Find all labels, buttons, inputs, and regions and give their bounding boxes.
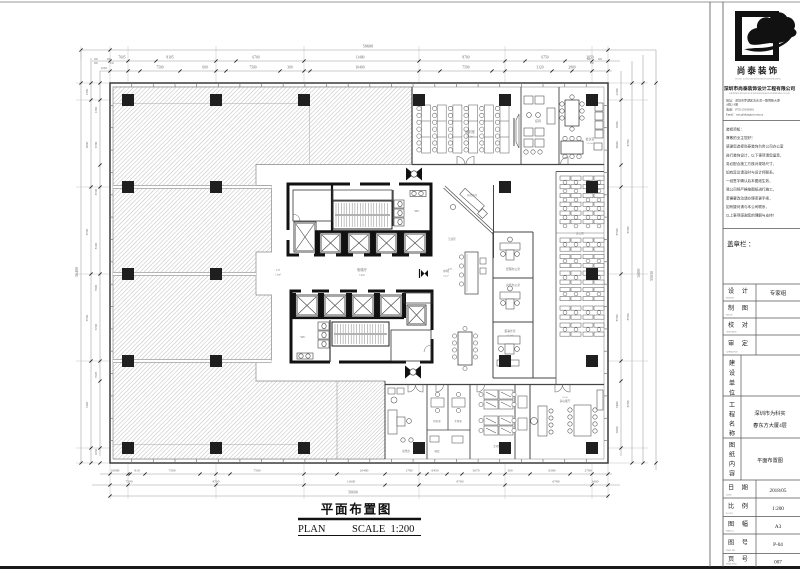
svg-text:5670: 5670 <box>473 469 480 473</box>
svg-text:深圳市尚泰装饰设计工程有限公司: 深圳市尚泰装饰设计工程有限公司 <box>724 85 796 92</box>
svg-text:8700: 8700 <box>626 139 630 146</box>
svg-text:8700: 8700 <box>85 228 89 235</box>
svg-text:春东方大厦4层: 春东方大厦4层 <box>753 421 787 429</box>
svg-text:SHEET.NO.: SHEET.NO. <box>726 564 737 566</box>
svg-text:前台接待: 前台接待 <box>467 193 478 197</box>
svg-text:电梯厅: 电梯厅 <box>357 267 368 272</box>
svg-text:10080: 10080 <box>111 469 120 473</box>
svg-text:DATE: DATE <box>726 494 732 497</box>
svg-text:洽谈区: 洽谈区 <box>448 237 456 241</box>
svg-text:办公区: 办公区 <box>576 232 584 236</box>
svg-text:装修须知：: 装修须知： <box>726 127 744 132</box>
svg-text:图 号: 图 号 <box>728 539 751 546</box>
svg-text:WC: WC <box>300 335 305 339</box>
svg-text:如有疑问请与本公司联系，: 如有疑问请与本公司联系， <box>726 204 769 209</box>
svg-text:55030: 55030 <box>650 271 654 281</box>
svg-text:PLAN: PLAN <box>298 524 326 535</box>
svg-text:平面布置图: 平面布置图 <box>757 456 783 464</box>
svg-text:6000: 6000 <box>615 141 619 148</box>
svg-text:8700: 8700 <box>457 480 464 484</box>
svg-text:位: 位 <box>729 389 735 397</box>
svg-text:7605: 7605 <box>94 371 98 378</box>
svg-text:会议室: 会议室 <box>585 136 594 141</box>
svg-text:2018/05: 2018/05 <box>769 488 786 494</box>
svg-text:工: 工 <box>729 402 735 409</box>
svg-text:C/E: C/E <box>276 269 281 272</box>
svg-text:财务室: 财务室 <box>433 419 441 423</box>
svg-text:8700: 8700 <box>462 56 469 60</box>
svg-text:DWG.NO.: DWG.NO. <box>726 550 736 552</box>
svg-text:培训室: 培训室 <box>465 129 475 134</box>
svg-text:300: 300 <box>287 66 293 70</box>
svg-text:SHANG TAI DECORATION DESIGN EN: SHANG TAI DECORATION DESIGN ENGINEERING <box>735 78 781 81</box>
svg-text:制 图: 制 图 <box>728 304 751 312</box>
svg-text:300: 300 <box>507 469 513 473</box>
svg-text:感谢您选择尚泰装饰为贵公司办公室: 感谢您选择尚泰装饰为贵公司办公室 <box>726 144 784 149</box>
svg-text:007: 007 <box>774 560 782 566</box>
svg-text:经理办公室: 经理办公室 <box>506 267 520 271</box>
svg-text:页 号: 页 号 <box>728 556 751 563</box>
svg-text:设 计: 设 计 <box>728 287 751 295</box>
svg-text:5.0m²: 5.0m² <box>359 274 365 277</box>
svg-text:6580: 6580 <box>549 469 556 473</box>
svg-text:1900: 1900 <box>615 121 619 128</box>
svg-text:P-04: P-04 <box>773 542 783 548</box>
svg-text:600: 600 <box>202 66 208 70</box>
svg-text:56400: 56400 <box>75 267 79 277</box>
svg-text:1060: 1060 <box>94 448 98 455</box>
svg-text:纸: 纸 <box>729 451 735 459</box>
svg-text:DRAW: DRAW <box>726 314 733 317</box>
svg-text:8700: 8700 <box>615 228 619 235</box>
svg-text:41.2m²: 41.2m² <box>507 334 514 337</box>
svg-text:6700: 6700 <box>94 323 98 330</box>
svg-text:审 定: 审 定 <box>728 340 751 348</box>
svg-text:8700: 8700 <box>626 226 630 233</box>
svg-text:1390: 1390 <box>85 88 89 95</box>
svg-text:电话：0755-25190301: 电话：0755-25190301 <box>726 107 754 112</box>
svg-text:7500: 7500 <box>156 66 163 70</box>
svg-text:6780: 6780 <box>94 141 98 148</box>
svg-text:若需要改动请办理变更手续，: 若需要改动请办理变更手续， <box>726 195 773 200</box>
svg-text:档案: 档案 <box>434 449 440 453</box>
svg-text:22804: 22804 <box>101 67 108 70</box>
svg-text:SIZE(A): SIZE(A) <box>726 530 734 533</box>
svg-text:6780: 6780 <box>553 480 560 484</box>
svg-text:Email：sztc@shangtai.com.cn: Email：sztc@shangtai.com.cn <box>726 113 764 117</box>
svg-text:7500: 7500 <box>462 66 469 70</box>
svg-text:8700: 8700 <box>85 314 89 321</box>
svg-text:7605: 7605 <box>118 56 125 60</box>
svg-text:1780: 1780 <box>406 469 413 473</box>
svg-text:9.4m²: 9.4m² <box>443 275 449 278</box>
svg-text:2000: 2000 <box>615 426 619 433</box>
svg-text:专家组: 专家组 <box>770 289 787 297</box>
svg-text:8700: 8700 <box>213 480 220 484</box>
svg-text:比 例: 比 例 <box>728 502 751 510</box>
svg-text:SCALE: SCALE <box>726 512 734 515</box>
svg-text:名: 名 <box>729 420 735 428</box>
svg-text:10400: 10400 <box>360 469 369 473</box>
svg-text:建: 建 <box>729 359 735 367</box>
svg-text:平面布置图: 平面布置图 <box>321 502 393 517</box>
svg-text:接待: 接待 <box>535 118 541 123</box>
svg-text:SHENZHEN SHANGTAI DECORATION D: SHENZHEN SHANGTAI DECORATION DESIGN ENGI… <box>729 92 790 95</box>
svg-text:日 期: 日 期 <box>728 484 751 492</box>
svg-text:多功能厅: 多功能厅 <box>560 399 571 403</box>
svg-text:称: 称 <box>729 430 735 438</box>
svg-text:50600: 50600 <box>348 491 358 495</box>
svg-text:A3: A3 <box>775 524 782 530</box>
svg-text:程: 程 <box>729 411 735 419</box>
svg-text:尚 泰 装 饰: 尚 泰 装 饰 <box>737 66 778 76</box>
svg-text:我公司将严格按图纸进行施工，: 我公司将严格按图纸进行施工， <box>726 187 776 192</box>
svg-text:7500: 7500 <box>169 469 176 473</box>
svg-text:1600: 1600 <box>592 480 599 484</box>
svg-text:总经办公室: 总经办公室 <box>506 283 520 287</box>
svg-text:如有异议请及时与设计师联系。: 如有异议请及时与设计师联系。 <box>726 170 776 175</box>
svg-text:深圳市为科实: 深圳市为科实 <box>754 409 785 417</box>
svg-text:8700: 8700 <box>626 400 630 407</box>
svg-text:1:200: 1:200 <box>772 506 784 512</box>
svg-text:APPROVED: APPROVED <box>726 351 738 354</box>
svg-text:3120: 3120 <box>536 66 543 70</box>
svg-text:2780: 2780 <box>585 469 592 473</box>
svg-text:3050: 3050 <box>586 56 593 60</box>
svg-text:1360: 1360 <box>94 106 98 113</box>
svg-text:7500: 7500 <box>249 66 256 70</box>
svg-text:7400: 7400 <box>85 401 89 408</box>
svg-text:尊敬的业主您好！: 尊敬的业主您好！ <box>726 135 755 140</box>
svg-text:WC: WC <box>414 209 419 213</box>
svg-text:8700: 8700 <box>615 314 619 321</box>
svg-text:11400: 11400 <box>356 56 365 60</box>
svg-text:36800: 36800 <box>637 268 641 277</box>
svg-text:10400: 10400 <box>356 66 365 70</box>
svg-text:7900: 7900 <box>94 284 98 291</box>
svg-text:6700: 6700 <box>252 56 259 60</box>
svg-text:一经签字确认后本图纸生效，: 一经签字确认后本图纸生效， <box>726 178 773 183</box>
svg-text:2800: 2800 <box>568 66 575 70</box>
svg-text:单: 单 <box>729 379 735 387</box>
svg-text:11630: 11630 <box>347 480 356 484</box>
svg-text:容: 容 <box>729 470 735 478</box>
svg-text:总经办: 总经办 <box>402 449 410 453</box>
svg-text:8700: 8700 <box>626 313 630 320</box>
svg-text:CHECKED: CHECKED <box>726 332 737 334</box>
svg-text:67.2m²: 67.2m² <box>466 136 474 139</box>
svg-text:SCALE 1:200: SCALE 1:200 <box>352 524 414 535</box>
svg-text:8700: 8700 <box>94 188 98 195</box>
svg-text:主管室: 主管室 <box>454 419 462 423</box>
svg-text:务必配合施工方核对现场尺寸，: 务必配合施工方核对现场尺寸， <box>726 161 776 166</box>
svg-text:盖章栏 ：: 盖章栏 ： <box>727 239 755 248</box>
svg-text:8.5m²: 8.5m² <box>562 396 568 399</box>
svg-text:图: 图 <box>729 442 735 449</box>
svg-text:A栋2-3层: A栋2-3层 <box>726 102 738 107</box>
svg-text:校 对: 校 对 <box>728 321 751 329</box>
svg-text:31.0m²: 31.0m² <box>586 142 593 145</box>
svg-text:7500: 7500 <box>126 480 133 484</box>
svg-text:910: 910 <box>134 469 140 473</box>
svg-text:内: 内 <box>729 460 735 468</box>
svg-text:6450: 6450 <box>432 469 439 473</box>
svg-text:6750: 6750 <box>541 56 548 60</box>
svg-text:2200: 2200 <box>615 88 619 95</box>
svg-text:以上事项感谢您的理解与支持！: 以上事项感谢您的理解与支持！ <box>726 213 776 218</box>
svg-text:水吧: 水吧 <box>443 268 449 273</box>
svg-text:进行装饰设计，以下事项请您留意，: 进行装饰设计，以下事项请您留意， <box>726 152 784 157</box>
svg-text:6000: 6000 <box>85 141 89 148</box>
svg-text:1.0m²: 1.0m² <box>275 274 281 277</box>
svg-text:董事长室: 董事长室 <box>504 329 515 333</box>
svg-text:8105: 8105 <box>166 56 173 60</box>
svg-text:7500: 7500 <box>254 469 261 473</box>
svg-text:7400: 7400 <box>615 401 619 408</box>
svg-text:设: 设 <box>729 369 735 377</box>
svg-text:8100: 8100 <box>94 242 98 249</box>
svg-text:图 幅: 图 幅 <box>728 520 751 528</box>
svg-text:50600: 50600 <box>363 44 373 49</box>
svg-text:DESIGN: DESIGN <box>726 298 734 300</box>
